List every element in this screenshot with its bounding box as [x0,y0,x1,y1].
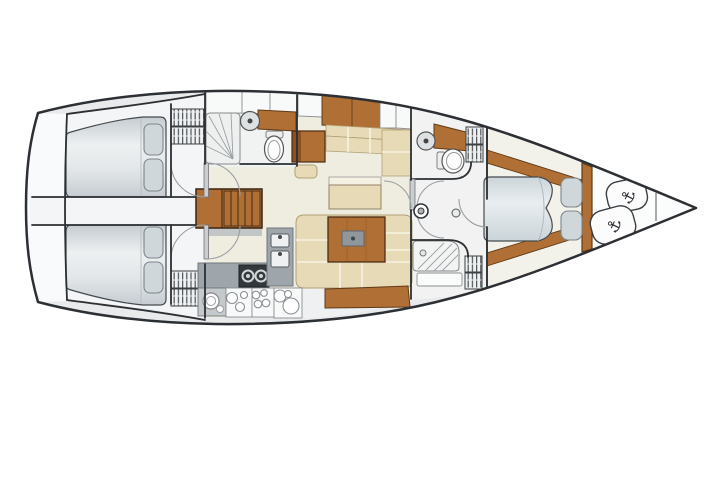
shelf-locker [465,273,482,289]
settee-corner-port [382,130,411,176]
plate-circle [252,291,260,299]
burner-dot [259,274,263,278]
table-insert-dot [351,237,355,241]
mast-post [414,204,428,218]
yacht-floor-plan: ⚓ ⚓ [0,0,720,480]
pillow [144,227,163,258]
plate-circle [285,291,292,298]
plate-circle [227,293,238,304]
stairs-shadow [204,228,262,236]
plate-circle [241,292,248,299]
hanging-locker [171,127,204,144]
chart-table-top [301,131,325,162]
plate-circle [262,299,270,307]
sideboard-seat [329,185,381,209]
pillow [561,211,582,240]
toilet-bowl [265,136,284,162]
headboard-wood [582,163,592,252]
burner-dot [246,274,250,278]
mast-core [418,208,424,214]
faucet [278,252,282,256]
floor-wood-strip [325,286,410,308]
locker-box [206,89,242,114]
hanging-locker [171,109,204,126]
yacht-floorplan-canvas: ⚓ ⚓ [0,0,720,480]
faucet [278,235,282,239]
vanity-counter [258,110,296,131]
door-leaf [204,163,209,197]
door-knob [452,209,460,217]
pillow [144,124,163,155]
door-leaf [204,225,209,259]
plate-circle [236,303,245,312]
plate-circle [261,290,268,297]
plate-circle [254,300,262,308]
nav-stool [295,165,317,178]
plate-circle [274,290,286,302]
plate-circle [217,306,224,313]
shower-drain [420,250,426,256]
washbasin-drain [248,119,253,124]
shower-bench [417,273,462,286]
washbasin-drain [424,139,429,144]
crockery-storage [198,288,302,318]
shelf-locker [466,127,483,144]
shelf-locker [465,256,482,272]
pillow [144,262,163,293]
plate-circle [283,298,299,314]
pillow [561,178,582,207]
engine-corridor [30,197,196,225]
shelf-locker [466,145,483,162]
pillow [144,159,163,191]
sideboard-top [329,177,381,185]
